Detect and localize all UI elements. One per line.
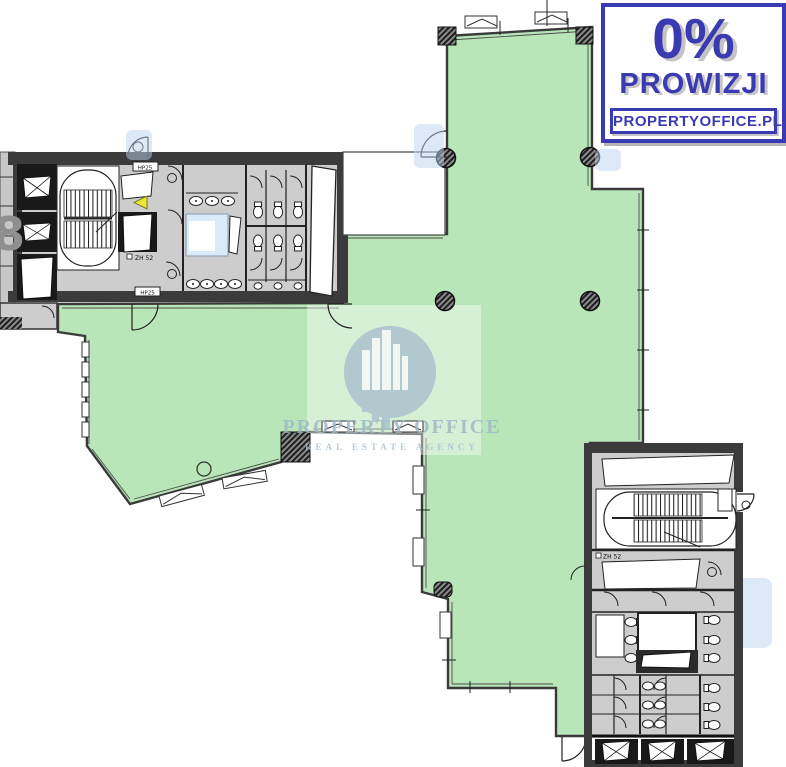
hp25-top-label: HP25 — [138, 166, 153, 172]
staircase-bottom-right — [596, 489, 736, 549]
wall — [8, 152, 348, 165]
elevator-bank-bottom — [592, 736, 734, 764]
badge-website: PROPERTYOFFICE.PL — [610, 108, 777, 134]
floor-plan-image: HP25 ZH 52 HP25 — [0, 0, 786, 767]
badge-commission-label: PROWIZJI — [605, 69, 782, 99]
zh52-core1-label: ZH 52 — [135, 255, 153, 262]
door-panel — [310, 166, 336, 296]
zh52-core2-label: ZH 52 — [603, 554, 621, 561]
door-swing-icon — [737, 494, 754, 511]
zero-commission-badge: 0% PROWIZJI PROPERTYOFFICE.PL — [601, 3, 786, 143]
staircase-top-left — [57, 166, 119, 270]
hp25-bottom-label: HP25 — [140, 291, 155, 297]
badge-percent: 0% — [605, 10, 782, 68]
wall — [8, 291, 346, 302]
core-stairwell-top-left: HP25 ZH 52 HP25 — [0, 137, 352, 330]
floor-number-label: 8 — [0, 207, 25, 261]
watermark-subtitle: REAL ESTATE AGENCY — [305, 442, 479, 452]
core-stairwell-bottom-right: ZH 52 — [571, 443, 754, 767]
watermark-title: PROPERTY OFFICE — [282, 416, 501, 438]
